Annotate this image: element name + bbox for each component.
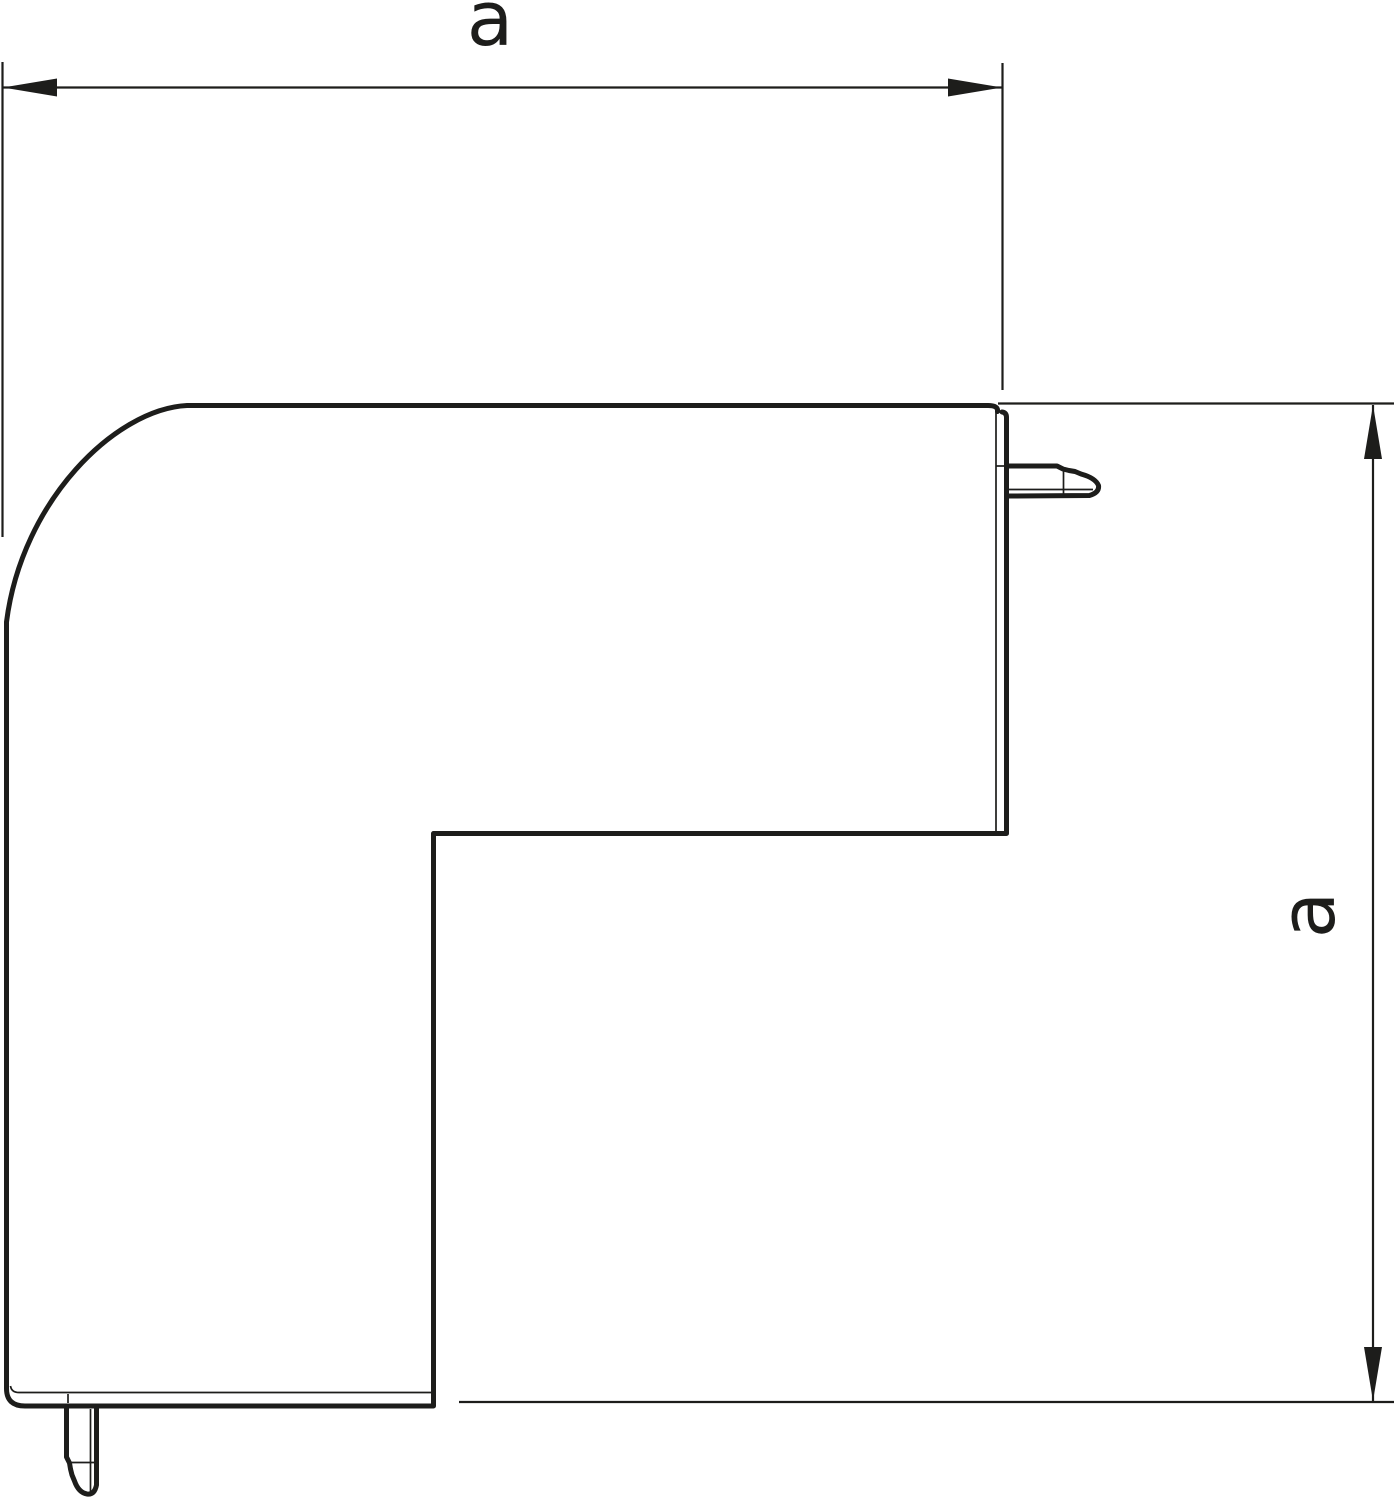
arrowhead-down-icon — [1364, 1347, 1382, 1401]
dimension-label-horizontal: a — [467, 0, 514, 63]
dimension-labels: a a — [467, 0, 1352, 938]
arrowhead-right-icon — [948, 79, 1002, 97]
technical-drawing-page: a a — [0, 0, 1396, 1500]
part-outer-contour — [7, 406, 1007, 1407]
drawing-lines: a a — [3, 0, 1395, 1494]
flat-angle-technical-drawing: a a — [0, 0, 1396, 1500]
dimension-horizontal — [3, 62, 1003, 537]
dimension-vertical — [459, 404, 1394, 1403]
snap-clip-right — [1007, 466, 1099, 496]
dimension-label-vertical: a — [1263, 892, 1352, 939]
arrowhead-left-icon — [3, 79, 57, 97]
snap-clip-bottom — [67, 1407, 97, 1494]
bottom-end-inner-edge — [11, 1386, 432, 1393]
part-flat-angle — [7, 406, 1099, 1495]
arrowhead-up-icon — [1364, 405, 1382, 459]
